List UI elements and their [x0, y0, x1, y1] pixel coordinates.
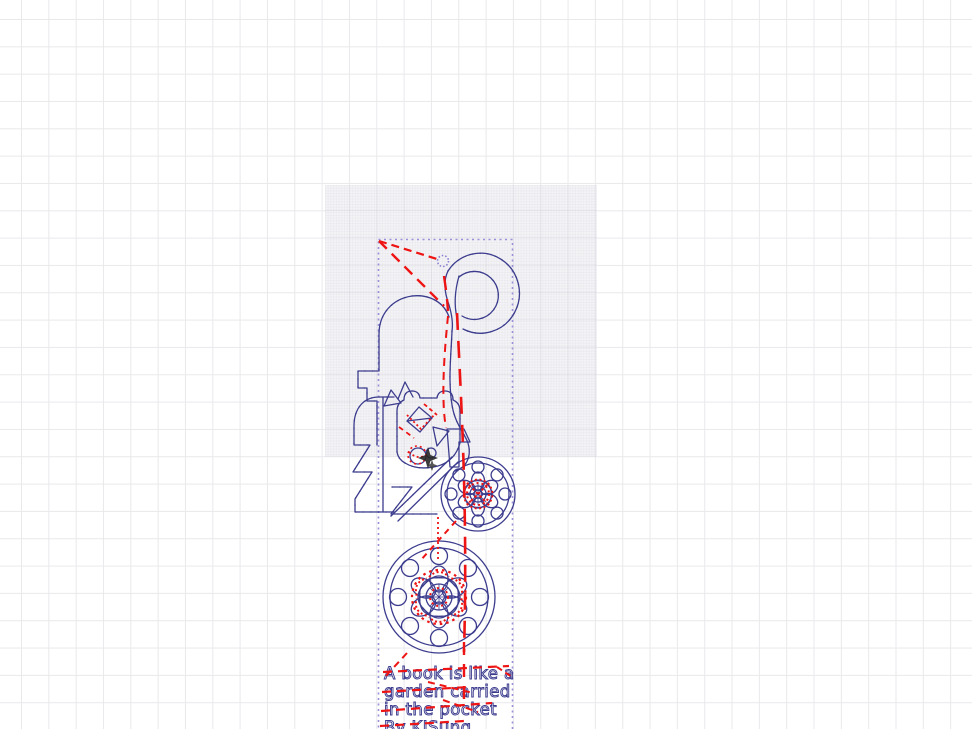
hanger-hook[interactable] [438, 253, 520, 333]
design-layer: A book is like a garden carried in the p… [0, 0, 972, 729]
string-hole[interactable] [438, 256, 449, 267]
canvas-viewport[interactable]: A book is like a garden carried in the p… [0, 0, 972, 729]
mandala-small[interactable] [441, 457, 515, 531]
selection-marquee[interactable] [379, 240, 513, 729]
calligraphy-body[interactable] [358, 271, 469, 471]
quote-text[interactable]: A book is like a garden carried in the p… [384, 664, 514, 729]
mandala-large[interactable] [383, 541, 495, 653]
